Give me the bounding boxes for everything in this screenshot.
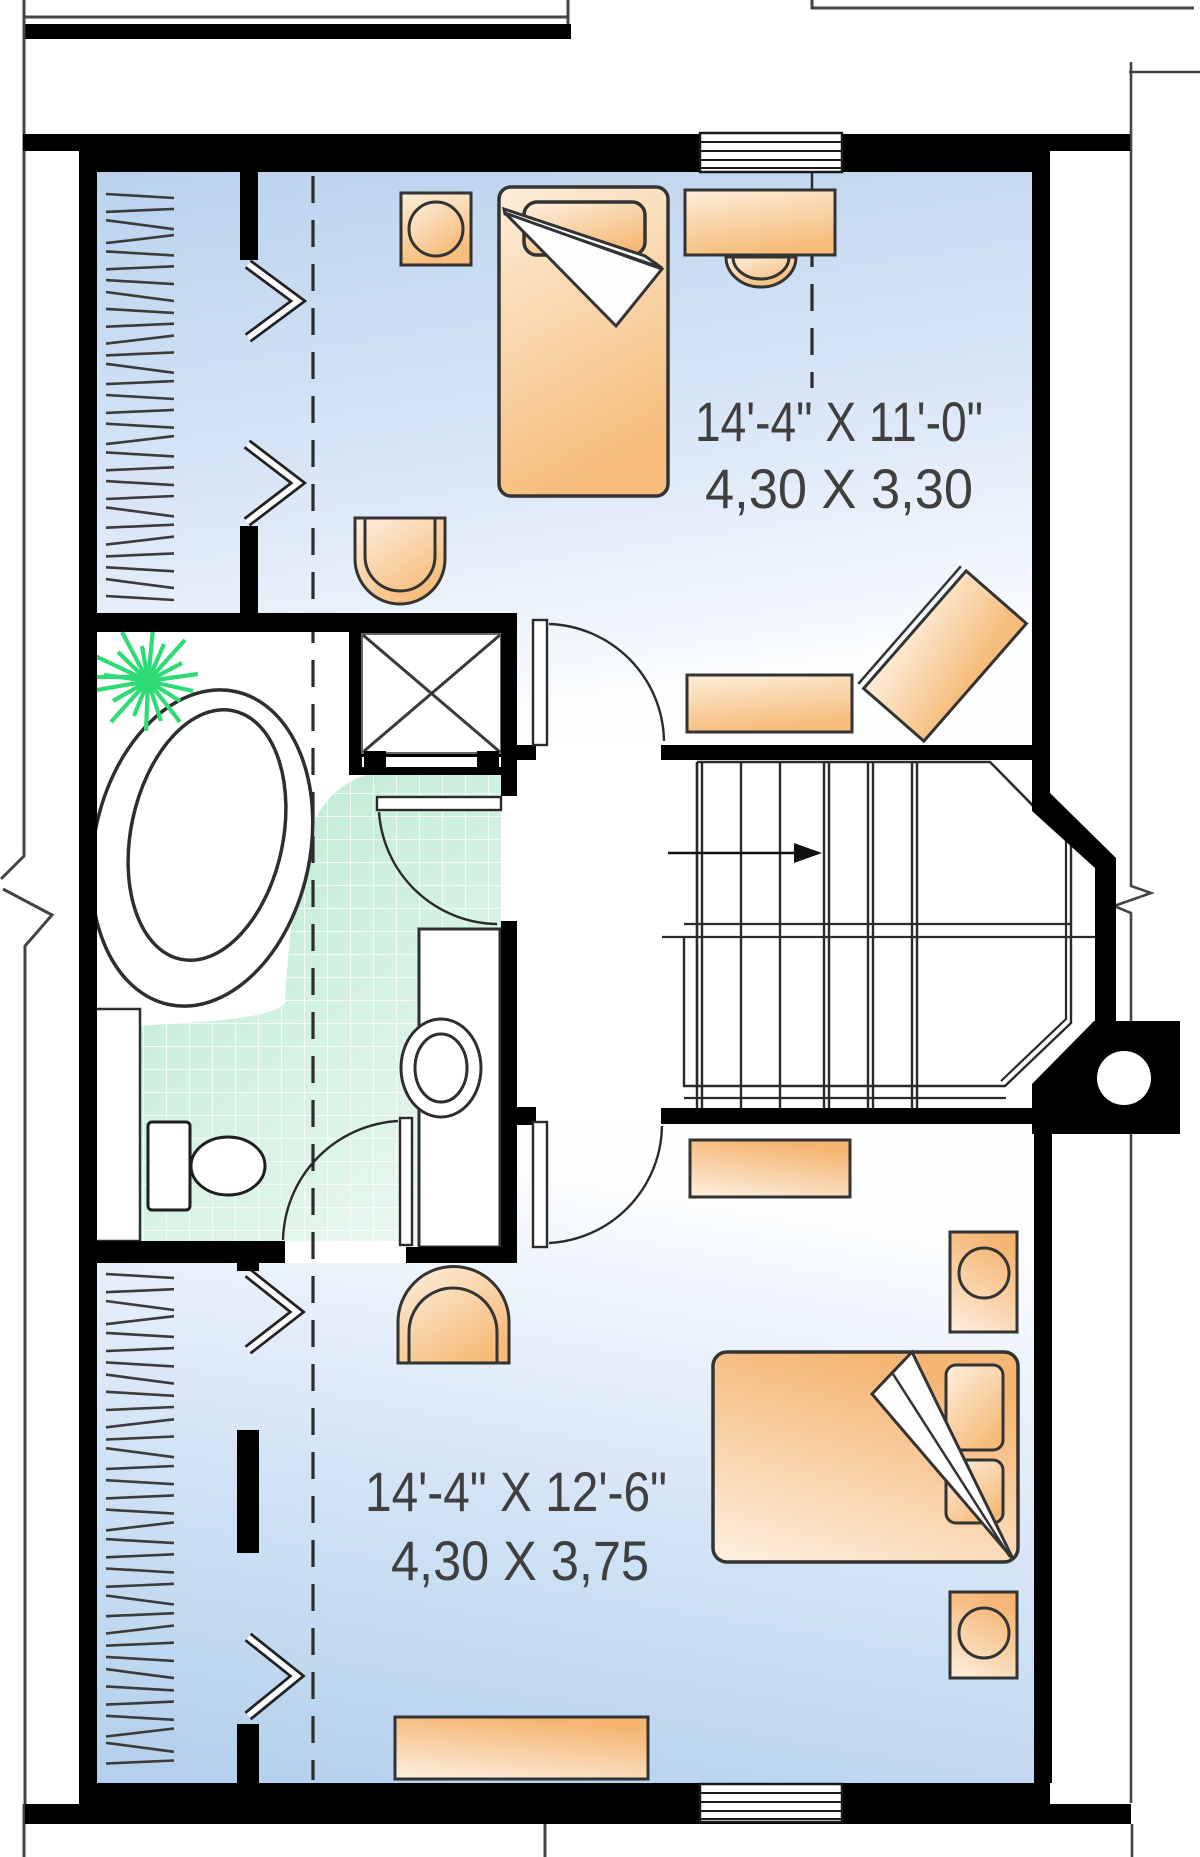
svg-text:14'-4" X 12'-6": 14'-4" X 12'-6" [365,1460,667,1523]
svg-text:14'-4" X 11'-0": 14'-4" X 11'-0" [695,390,983,453]
svg-text:4,30 X 3,75: 4,30 X 3,75 [391,1529,649,1592]
svg-text:4,30 X 3,30: 4,30 X 3,30 [705,457,973,520]
